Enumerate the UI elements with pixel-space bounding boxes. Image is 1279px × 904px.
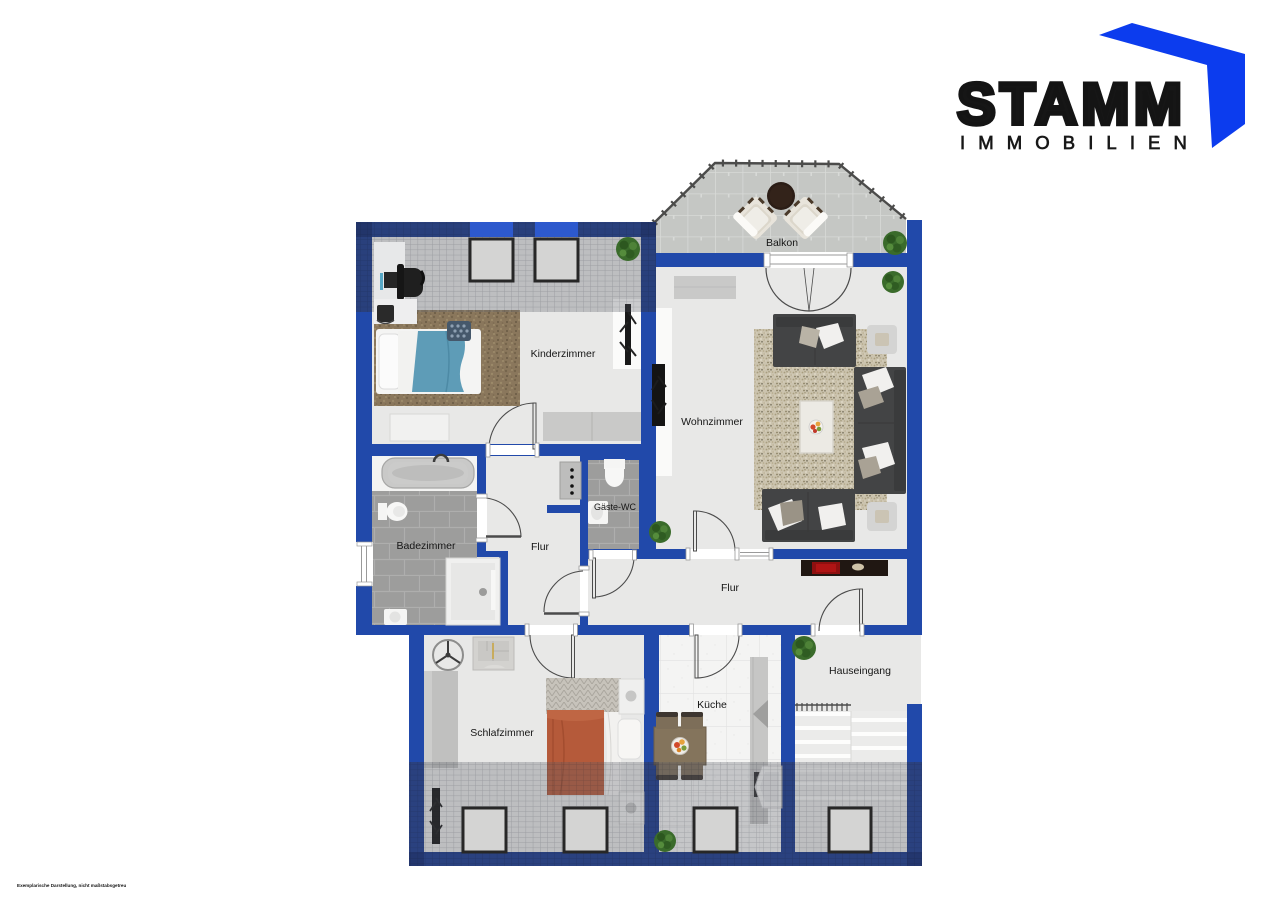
- svg-text:Küche: Küche: [697, 699, 727, 711]
- svg-text:STAMM: STAMM: [957, 72, 1186, 137]
- svg-text:Kinderzimmer: Kinderzimmer: [531, 348, 596, 360]
- svg-text:Exemplarische Darstellung, nic: Exemplarische Darstellung, nicht maßstab…: [17, 883, 126, 888]
- svg-text:Flur: Flur: [531, 541, 550, 553]
- svg-text:Hauseingang: Hauseingang: [829, 665, 891, 677]
- svg-text:IMMOBILIEN: IMMOBILIEN: [960, 132, 1200, 153]
- svg-text:Schlafzimmer: Schlafzimmer: [470, 727, 534, 739]
- svg-text:Badezimmer: Badezimmer: [397, 540, 456, 552]
- svg-text:Wohnzimmer: Wohnzimmer: [681, 416, 743, 428]
- svg-text:Flur: Flur: [721, 582, 740, 594]
- svg-text:Gäste-WC: Gäste-WC: [594, 502, 637, 512]
- svg-text:Balkon: Balkon: [766, 237, 798, 249]
